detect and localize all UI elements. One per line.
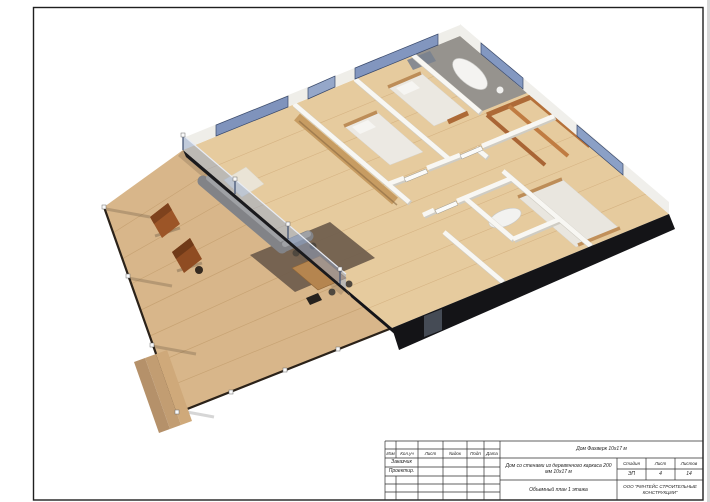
- toilet: [497, 87, 504, 94]
- tb-col-izm: Изм: [385, 449, 396, 458]
- tb-stage-value: ЭП: [617, 469, 646, 480]
- floorplan-3d-render: [102, 24, 675, 433]
- tb-sheet-value: 4: [646, 469, 675, 480]
- tb-col-data: Дата: [484, 449, 500, 458]
- deck-side-table: [195, 266, 203, 274]
- tb-row-designer: Проектир.: [385, 467, 418, 476]
- sheet-graphics: [0, 0, 710, 502]
- tb-object-description: Дом со стенами из деревянного каркаса 20…: [502, 458, 615, 480]
- tb-stage-label: Стадия: [617, 458, 646, 469]
- tb-row-customer: Заказчик: [385, 458, 418, 467]
- tb-company: ООО "РИНТЕЙС СТРОИТЕЛЬНЫЕ КОНСТРУКЦИИ": [619, 480, 701, 500]
- tb-project-title: Дом Фахверк 10х17 м: [500, 441, 703, 458]
- tb-sheet-label: Лист: [646, 458, 675, 469]
- tb-col-koluch: Кол.уч: [396, 449, 418, 458]
- tb-col-list: Лист: [418, 449, 443, 458]
- tb-drawing-title: Объемный план 1 этажа: [500, 480, 617, 500]
- tb-col-ndok: №док: [443, 449, 467, 458]
- tb-col-podp: Подп: [467, 449, 484, 458]
- tb-sheets-label: Листов: [675, 458, 703, 469]
- tb-sheets-value: 14: [675, 469, 703, 480]
- drawing-sheet: Изм Кол.уч Лист №док Подп Дата Заказчик …: [0, 0, 710, 502]
